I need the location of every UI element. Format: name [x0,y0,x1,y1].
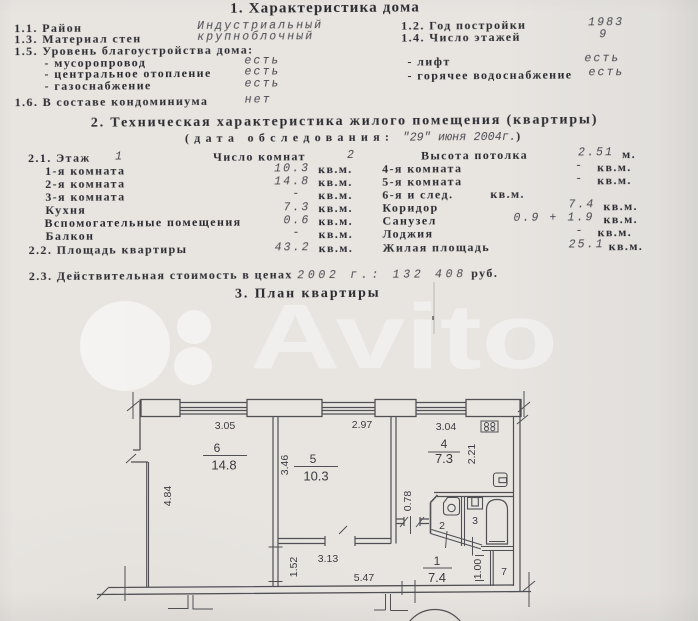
svg-text:1.52: 1.52 [288,557,300,578]
svg-text:5: 5 [310,452,317,466]
svg-text:5.47: 5.47 [354,572,375,584]
svg-text:3.46: 3.46 [279,455,291,476]
svg-text:3: 3 [472,515,478,527]
svg-text:2: 2 [439,520,445,532]
svg-text:10.3: 10.3 [303,469,328,484]
svg-text:7.4: 7.4 [428,570,446,585]
svg-text:4.84: 4.84 [162,486,174,507]
svg-text:1: 1 [434,554,441,568]
svg-text:7.3: 7.3 [435,451,453,466]
svg-text:14.8: 14.8 [211,458,236,473]
svg-text:3.05: 3.05 [215,420,236,432]
svg-text:7: 7 [501,566,507,578]
svg-text:3.04: 3.04 [436,421,457,433]
svg-text:2.21: 2.21 [466,444,478,465]
svg-text:4: 4 [441,437,448,451]
svg-text:3.13: 3.13 [318,553,339,565]
svg-text:0.78: 0.78 [402,491,414,512]
svg-text:2.97: 2.97 [352,419,373,431]
svg-text:6: 6 [214,441,221,455]
svg-text:1.00: 1.00 [472,559,484,580]
